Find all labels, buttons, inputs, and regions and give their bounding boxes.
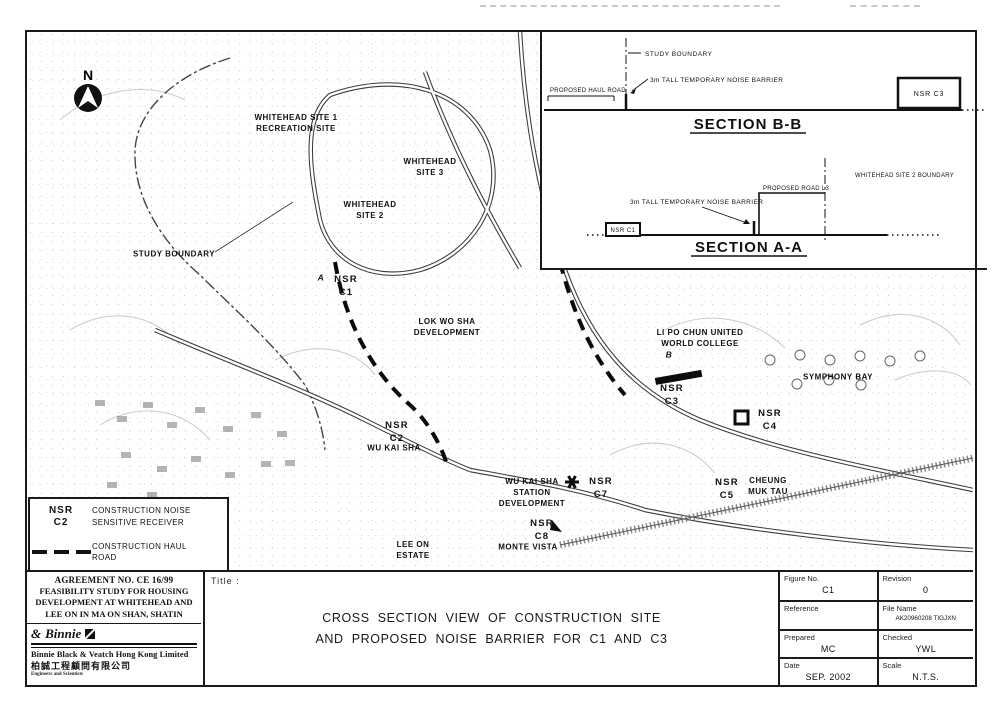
binnie-logo-text: Binnie (45, 626, 81, 642)
reference-label: Reference (784, 604, 819, 613)
aa-boundary-label: WHITEHEAD SITE 2 BOUNDARY (855, 173, 954, 179)
construction-haul-road (335, 262, 625, 465)
binnie-flag-glyph: & (31, 626, 41, 642)
firm-logo-area: & Binnie Binnie Black & Veatch Hong Kong… (27, 623, 201, 677)
date-value: SEP. 2002 (780, 672, 877, 682)
firm-tagline: Engineers and Scientists (31, 672, 197, 677)
title-block-fields: Figure No. C1 Revision 0 Reference File … (780, 572, 973, 685)
binnie-square-icon (85, 629, 95, 639)
revision-label: Revision (883, 574, 912, 583)
nsr-c4-marker (735, 411, 748, 424)
scale-label: Scale (883, 661, 902, 670)
checked-cell: Checked YWL (877, 629, 974, 657)
prepared-label: Prepared (784, 633, 815, 642)
page-fold-mark (480, 5, 780, 7)
reference-cell: Reference (780, 600, 877, 628)
bb-nsr-box-label: NSR C3 (914, 91, 944, 98)
aa-barrier-label: 3m TALL TEMPORARY NOISE BARRIER (630, 199, 763, 206)
checked-label: Checked (883, 633, 913, 642)
bb-haul-road-label: PROPOSED HAUL ROAD (550, 88, 626, 94)
agreement-number: AGREEMENT NO. CE 16/99 (27, 575, 201, 586)
page-fold-mark (850, 5, 920, 7)
legend-haul-road-symbol (32, 550, 91, 554)
cross-sections-inset: PROPOSED HAUL ROAD STUDY BOUNDARY 3m TAL… (540, 30, 987, 270)
file-name-label: File Name (883, 604, 917, 613)
noise-barrier-bar-c3 (655, 370, 703, 385)
section-aa-drawing: NSR C1 PROPOSED ROAD L3 WHITEHEAD SITE 2… (587, 158, 954, 256)
section-bb-title: SECTION B-B (694, 116, 803, 133)
aa-road-label: PROPOSED ROAD L3 (763, 186, 830, 192)
nsr-c7-marker (565, 476, 579, 488)
file-name-cell: File Name AK20960208 TIGJXN (877, 600, 974, 628)
aa-nsr-box-label: NSR C1 (610, 228, 635, 234)
study-boundary-leader-line (215, 202, 293, 252)
firm-name-chinese: 柏誠工程顧問有限公司 (31, 659, 197, 672)
legend-box: NSR C2 CONSTRUCTION NOISE SENSITIVE RECE… (28, 497, 229, 572)
logo-rule (31, 643, 197, 648)
revision-cell: Revision 0 (877, 572, 974, 600)
legend-nsr-symbol: NSR C2 (49, 505, 73, 529)
prepared-value: MC (780, 644, 877, 654)
legend-nsr-text: CONSTRUCTION NOISE SENSITIVE RECEIVER (92, 505, 227, 528)
figure-no-value: C1 (780, 585, 877, 595)
north-arrow-icon: N (74, 67, 102, 112)
revision-value: 0 (879, 585, 974, 595)
svg-text:N: N (83, 67, 93, 83)
figure-no-cell: Figure No. C1 (780, 572, 877, 600)
prepared-cell: Prepared MC (780, 629, 877, 657)
file-name-value: AK20960208 TIGJXN (879, 615, 974, 622)
symphony-bay-buildings (765, 350, 925, 390)
bb-study-boundary-label: STUDY BOUNDARY (645, 51, 713, 58)
title-label: Title : (211, 576, 240, 586)
scale-value: N.T.S. (879, 672, 974, 682)
title-block: AGREEMENT NO. CE 16/99 FEASIBILITY STUDY… (25, 570, 973, 685)
aa-road-platform (759, 193, 825, 235)
date-cell: Date SEP. 2002 (780, 657, 877, 685)
section-aa-title: SECTION A-A (695, 239, 803, 256)
drawing-title: CROSS SECTION VIEW OF CONSTRUCTION SITE … (205, 608, 778, 651)
bb-barrier-label: 3m TALL TEMPORARY NOISE BARRIER (650, 77, 783, 84)
nsr-c8-marker (550, 520, 562, 532)
title-block-project-cell: AGREEMENT NO. CE 16/99 FEASIBILITY STUDY… (25, 572, 205, 685)
title-block-title-cell: Title : CROSS SECTION VIEW OF CONSTRUCTI… (205, 572, 780, 685)
date-label: Date (784, 661, 800, 670)
project-description: FEASIBILITY STUDY FOR HOUSING DEVELOPMEN… (27, 586, 201, 620)
scale-cell: Scale N.T.S. (877, 657, 974, 685)
figure-no-label: Figure No. (784, 574, 819, 583)
checked-value: YWL (879, 644, 974, 654)
building-footprints (95, 400, 295, 498)
legend-haul-road-text: CONSTRUCTION HAUL ROAD (92, 541, 227, 564)
section-bb-drawing: PROPOSED HAUL ROAD STUDY BOUNDARY 3m TAL… (544, 38, 984, 133)
firm-name: Binnie Black & Veatch Hong Kong Limited (31, 650, 197, 659)
